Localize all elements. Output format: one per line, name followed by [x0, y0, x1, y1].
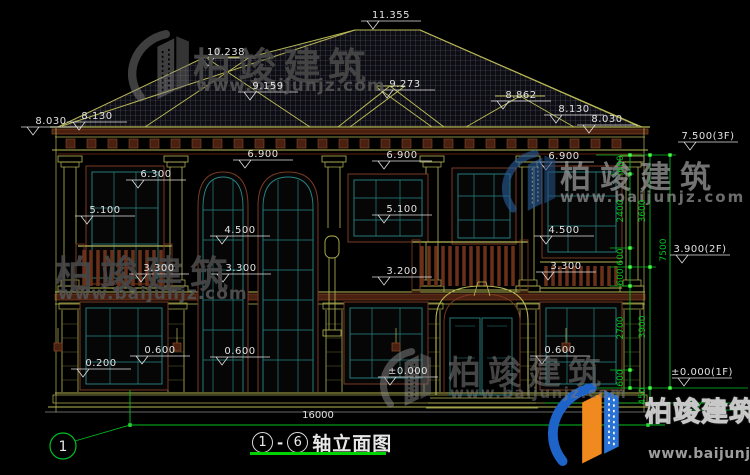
elevation-label: 8.130 — [558, 104, 589, 115]
elevation-label: 0.600 — [544, 345, 575, 356]
elevation-label: 3.900(2F) — [673, 244, 726, 255]
entry-door — [426, 282, 538, 408]
elevation-label: 8.130 — [81, 111, 112, 122]
axis-bubble-label: 1 — [59, 439, 68, 455]
elevation-label: 10.238 — [207, 47, 245, 58]
elevation-label: 9.159 — [252, 81, 283, 92]
vertical-dimension-label: 450 — [638, 387, 648, 404]
elevation-label: 3.300 — [550, 261, 581, 272]
vertical-dimension-label: 2400 — [616, 200, 626, 223]
elevation-label: 6.900 — [386, 150, 417, 161]
elevation-label: 6.300 — [140, 169, 171, 180]
elevation-label: 4.500 — [548, 225, 579, 236]
axis-circle-start: 1 — [252, 432, 273, 453]
elevation-label: 6.900 — [247, 149, 278, 160]
vertical-dimension-label: 600 — [616, 248, 626, 265]
elevation-label: 0.200 — [85, 358, 116, 369]
elevation-label: 8.030 — [35, 116, 66, 127]
axis-range-dash: - — [277, 434, 283, 452]
elevation-label: 6.900 — [548, 151, 579, 162]
eave-cornice — [50, 127, 650, 154]
vertical-dimension-label: 600 — [616, 369, 626, 386]
vertical-dimension-label: 7500 — [659, 239, 669, 262]
overall-width-dimension: 16000 — [302, 410, 334, 421]
elevation-label: ±0.000(1F) — [671, 367, 733, 378]
cad-canvas: 1 柏竣建筑 www.baijunjz — [0, 0, 750, 475]
roof — [58, 30, 642, 127]
vertical-dimension-label: 2700 — [616, 317, 626, 340]
axis-circle-end: 6 — [287, 432, 308, 453]
vertical-dimension-label: 600 — [616, 268, 626, 285]
elevation-label: 7.500(3F) — [681, 131, 734, 142]
vertical-dimension-label: 3600 — [638, 200, 648, 223]
elevation-label: 4.500 — [224, 225, 255, 236]
vertical-dimension-label: 3900 — [638, 316, 648, 339]
vertical-dimension-label: 600 — [616, 155, 626, 172]
elevation-label: 5.100 — [386, 204, 417, 215]
title-underline — [250, 452, 386, 455]
elevation-label: 8.030 — [591, 114, 622, 125]
elevation-label: 3.300 — [143, 263, 174, 274]
elevation-label: 5.100 — [89, 205, 120, 216]
elevation-label: ±0.000 — [388, 366, 428, 377]
elevation-label: 9.273 — [389, 79, 420, 90]
elevation-label: 3.200 — [386, 266, 417, 277]
elevation-label: 0.600 — [224, 346, 255, 357]
elevation-label: 0.600 — [144, 345, 175, 356]
elevation-label: 3.300 — [225, 263, 256, 274]
elevation-label: 11.355 — [372, 10, 410, 21]
elevation-label: 8.862 — [505, 90, 536, 101]
